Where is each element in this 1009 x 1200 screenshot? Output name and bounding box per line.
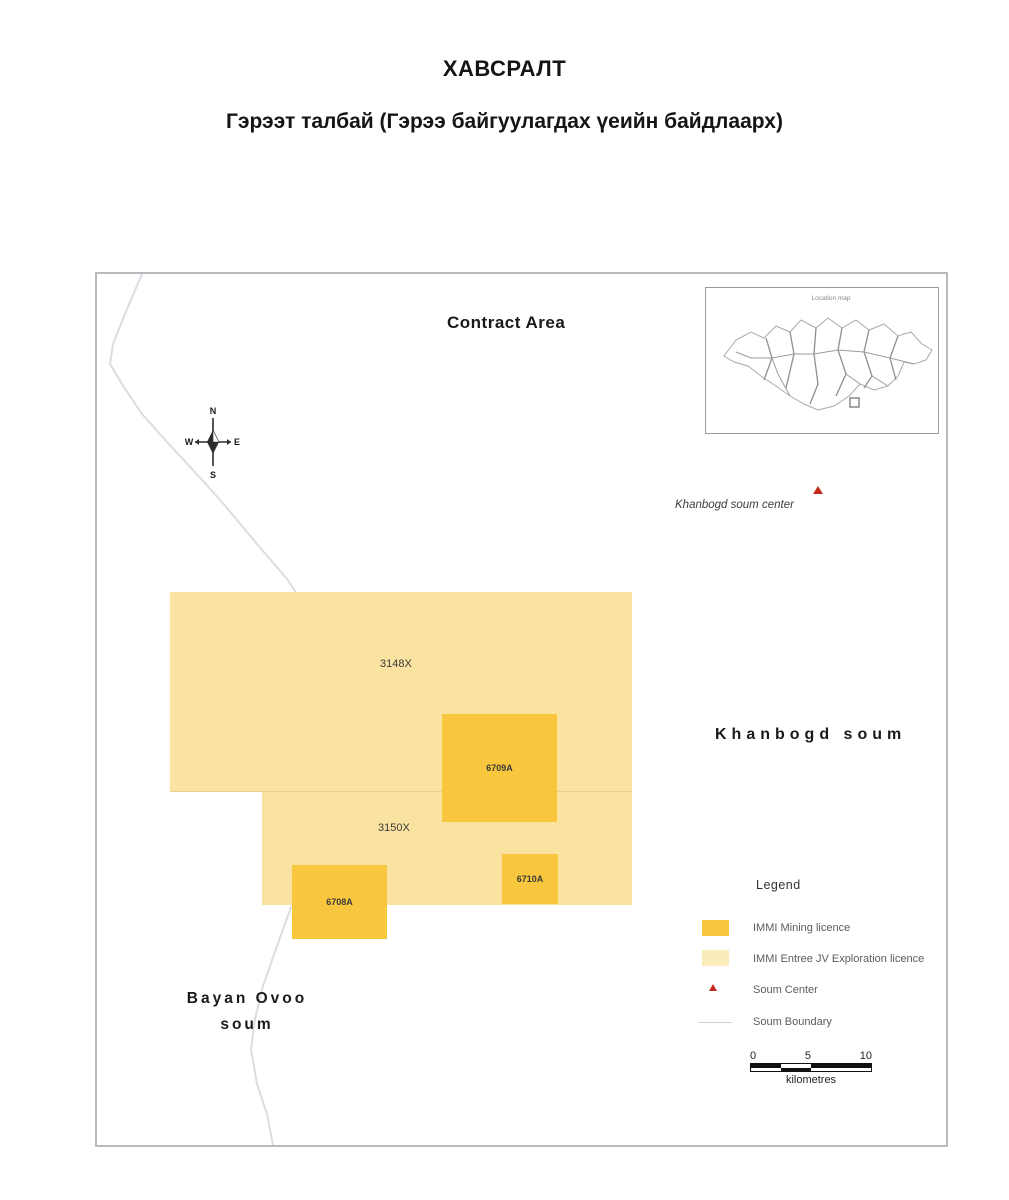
scale-unit-label: kilometres <box>750 1074 872 1086</box>
inset-title: Location map <box>811 295 850 302</box>
scale-ticks: 0 5 10 <box>750 1050 872 1062</box>
legend-swatch-mining <box>702 920 729 936</box>
exploration-licence-3148X <box>170 592 632 792</box>
licence-label: 3150X <box>378 822 410 834</box>
legend-item-mining: IMMI Mining licence <box>753 922 850 934</box>
licence-boundary-line <box>170 791 632 792</box>
page-subtitle: Гэрээт талбай (Гэрээ байгуулагдах үеийн … <box>0 110 1009 134</box>
scale-bar-graphic <box>750 1063 872 1072</box>
legend-soum-center-icon <box>709 984 717 991</box>
contract-area-map: Contract Area Location map N E S W <box>95 272 948 1147</box>
scale-tick-0: 0 <box>750 1050 756 1062</box>
bayan-ovoo-line1: Bayan Ovoo <box>152 986 342 1012</box>
compass-s: S <box>210 470 216 480</box>
scale-bar: 0 5 10 kilometres <box>750 1050 872 1086</box>
soum-center-label: Khanbogd soum center <box>675 499 794 511</box>
scale-tick-10: 10 <box>860 1050 872 1062</box>
compass-e: E <box>234 437 240 447</box>
mining-licence-6708A: 6708A <box>292 865 387 939</box>
map-title: Contract Area <box>447 313 565 333</box>
bayan-ovoo-line2: soum <box>152 1012 342 1038</box>
inset-location-marker <box>850 398 859 407</box>
licence-label: 6709A <box>486 763 513 773</box>
licence-label: 6710A <box>517 874 544 884</box>
north-arrow-compass: N E S W <box>185 404 241 480</box>
legend-item-exploration: IMMI Entree JV Exploration licence <box>753 953 924 965</box>
scale-tick-5: 5 <box>805 1050 811 1062</box>
mining-licence-6710A: 6710A <box>502 854 558 904</box>
compass-n: N <box>210 406 217 416</box>
mongolia-outline: Location map <box>706 288 938 433</box>
legend-title: Legend <box>756 878 801 892</box>
legend-item-soum-boundary: Soum Boundary <box>753 1016 832 1028</box>
legend-swatch-exploration <box>702 950 729 966</box>
mining-licence-6709A: 6709A <box>442 714 557 822</box>
location-inset-map: Location map <box>705 287 939 434</box>
licence-label: 6708A <box>326 897 353 907</box>
page-title: ХАВСРАЛТ <box>0 56 1009 82</box>
licence-label: 3148X <box>380 658 412 670</box>
khanbogd-soum-label: Khanbogd soum <box>715 726 906 744</box>
legend-soum-boundary-icon <box>698 1022 732 1023</box>
soum-center-marker <box>813 486 823 494</box>
bayan-ovoo-soum-label: Bayan Ovoo soum <box>152 986 342 1038</box>
compass-w: W <box>185 437 194 447</box>
legend-item-soum-center: Soum Center <box>753 984 818 996</box>
